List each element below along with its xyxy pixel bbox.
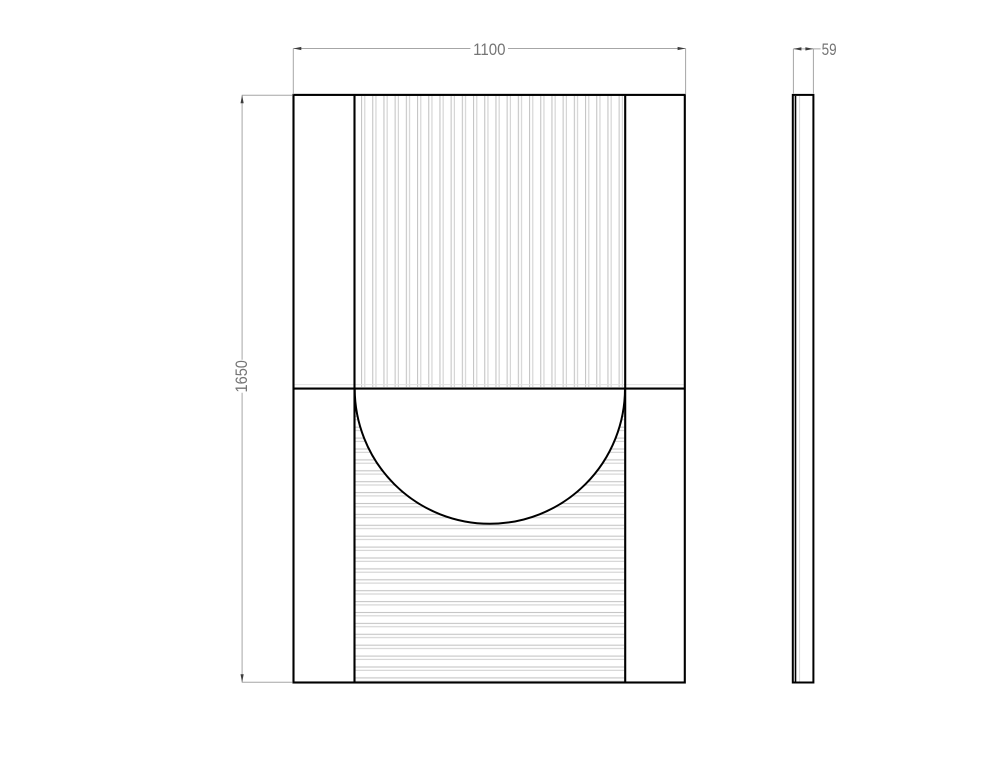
svg-text:59: 59 bbox=[822, 40, 837, 59]
svg-text:1650: 1650 bbox=[232, 360, 251, 392]
svg-text:1100: 1100 bbox=[473, 40, 505, 59]
